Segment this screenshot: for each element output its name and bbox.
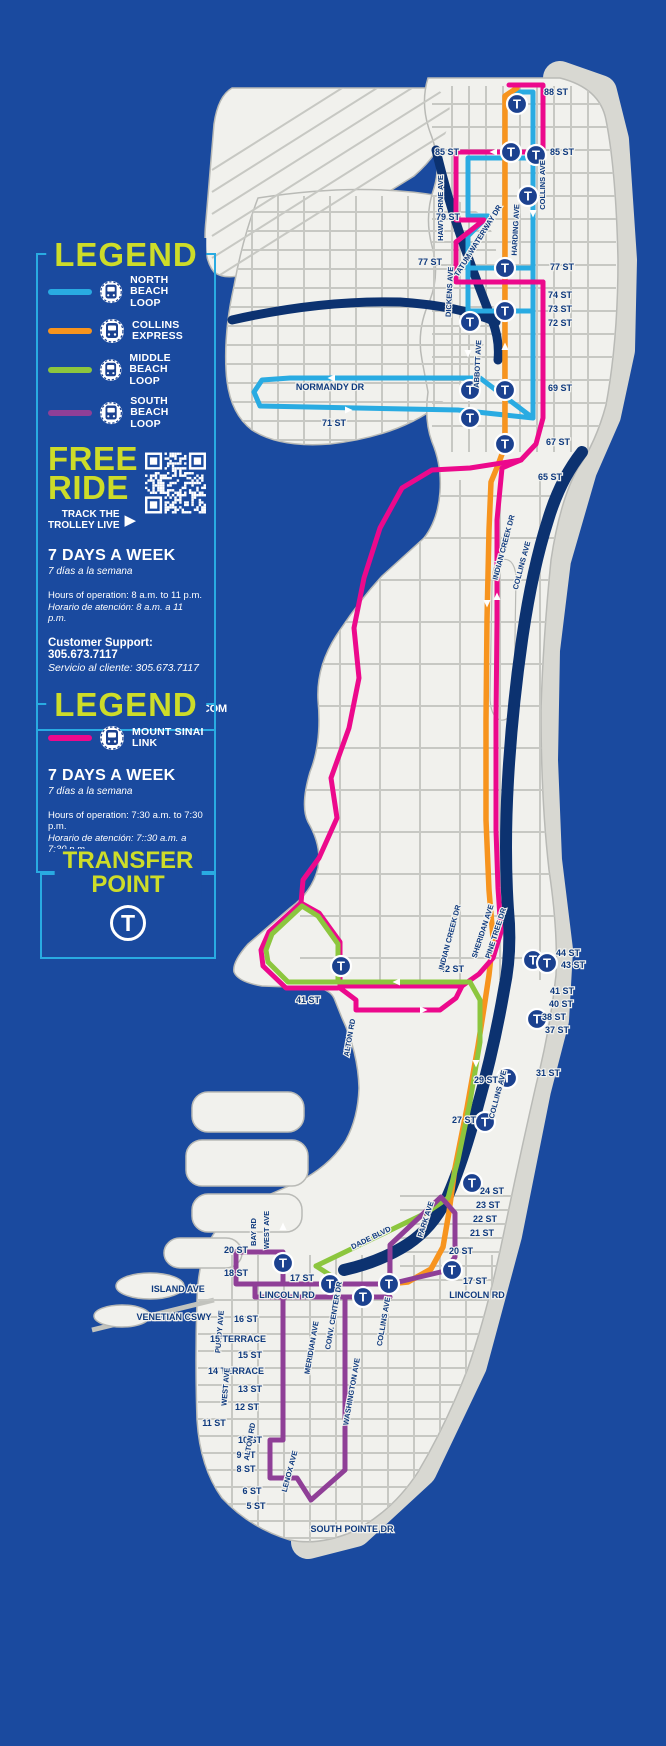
hours-of-operation-es: Horario de atención: 8 a.m. a 11 p.m. xyxy=(48,602,204,624)
street-label: 21 ST xyxy=(470,1228,495,1238)
transfer-point-icon: T xyxy=(518,186,538,206)
legend-row-south-beach: SOUTH BEACHLOOP xyxy=(48,396,204,430)
street-label: 8 ST xyxy=(236,1464,256,1474)
street-label: 20 ST xyxy=(449,1246,474,1256)
legend-route-list: NORTH BEACHLOOP COLLINSEXPRESS MIDDLE BE… xyxy=(48,275,204,430)
south-beach-line-swatch xyxy=(48,410,92,416)
transfer-point-panel: TRANSFER POINT T xyxy=(40,873,216,959)
route-label-line1: NORTH BEACH xyxy=(130,275,204,298)
trolley-stop-icon xyxy=(99,725,125,751)
svg-text:T: T xyxy=(279,1256,287,1271)
street-label: 22 ST xyxy=(473,1214,498,1224)
svg-text:T: T xyxy=(501,383,509,398)
transfer-point-icon: T xyxy=(495,380,515,400)
street-label: 29 ST xyxy=(474,1075,499,1085)
legend-row-north-beach: NORTH BEACHLOOP xyxy=(48,275,204,309)
hours-of-operation: Hours of operation: 7:30 a.m. to 7:30 p.… xyxy=(48,810,204,832)
svg-text:T: T xyxy=(448,1263,456,1278)
legend-title: LEGEND xyxy=(46,688,206,721)
street-label: 79 ST xyxy=(436,212,461,222)
street-label: 15 ST xyxy=(238,1350,263,1360)
transfer-point-icon: T xyxy=(537,953,557,973)
street-label: HAWTHORNE AVE xyxy=(436,175,445,241)
days-of-week-es: 7 días a la semana xyxy=(48,566,204,577)
street-label: 77 ST xyxy=(418,257,443,267)
mount-sinai-line-swatch xyxy=(48,735,92,741)
svg-text:T: T xyxy=(501,437,509,452)
svg-text:T: T xyxy=(468,1176,476,1191)
arrow-right-icon: ▶ xyxy=(125,513,137,528)
street-label: 17 ST xyxy=(290,1273,315,1283)
free-ride-block: FREE RIDE TRACK THE TROLLEY LIVE ▶ xyxy=(48,444,206,531)
street-label: 31 ST xyxy=(536,1068,561,1078)
street-label: LINCOLN RD xyxy=(259,1290,315,1300)
street-label: LINCOLN RD xyxy=(449,1290,505,1300)
svg-text:T: T xyxy=(529,953,537,968)
transfer-point-title: TRANSFER POINT xyxy=(55,849,202,897)
street-label: 16 ST xyxy=(234,1314,259,1324)
collins-express-line-swatch xyxy=(48,328,92,334)
transfer-point-icon: T xyxy=(501,142,521,162)
street-label: 17 ST xyxy=(463,1276,488,1286)
street-label: ISLAND AVE xyxy=(151,1284,205,1294)
customer-support-phone: Customer Support: 305.673.7117 xyxy=(48,637,204,661)
svg-text:T: T xyxy=(543,956,551,971)
transfer-point-icon: T xyxy=(460,312,480,332)
svg-text:T: T xyxy=(501,261,509,276)
street-label: 74 ST xyxy=(548,290,573,300)
street-label: 88 ST xyxy=(544,87,569,97)
street-label: 6 ST xyxy=(242,1486,262,1496)
street-label: NORMANDY DR xyxy=(296,382,365,392)
street-label: 69 ST xyxy=(548,383,573,393)
customer-support-phone-es: Servicio al cliente: 305.673.7117 xyxy=(48,662,204,674)
street-label: 24 ST xyxy=(480,1186,505,1196)
route-label-line1: MIDDLE BEACH xyxy=(129,353,204,376)
street-label: 23 ST xyxy=(476,1200,501,1210)
street-label: 11 ST xyxy=(202,1418,226,1428)
north-beach-line-swatch xyxy=(48,289,92,295)
trolley-stop-icon xyxy=(99,279,123,305)
street-label: 43 ST xyxy=(561,960,586,970)
free-ride-line2: RIDE xyxy=(48,473,138,502)
street-label: 5 ST xyxy=(246,1501,266,1511)
street-label: 14 TERRACE xyxy=(208,1366,264,1376)
transfer-point-icon: T xyxy=(442,1260,462,1280)
street-label: 41 ST xyxy=(550,986,575,996)
transfer-point-icon: T xyxy=(495,258,515,278)
legend-panel-main: LEGEND NORTH BEACHLOOP COLLINSEXPRESS MI… xyxy=(36,253,216,731)
street-label: 77 ST xyxy=(550,262,575,272)
street-label: 12 ST xyxy=(235,1402,260,1412)
legend-row-middle-beach: MIDDLE BEACHLOOP xyxy=(48,353,204,387)
days-of-week: 7 DAYS A WEEK xyxy=(48,767,204,785)
svg-text:T: T xyxy=(466,315,474,330)
street-label: 40 ST xyxy=(549,999,574,1009)
transfer-point-icon: T xyxy=(273,1253,293,1273)
qr-code[interactable] xyxy=(145,444,206,522)
svg-text:T: T xyxy=(513,97,521,112)
transfer-point-icon: T xyxy=(460,408,480,428)
route-label-line2: LOOP xyxy=(130,419,204,430)
trolley-map-page: { "colors": { "background": "#1a4a9f", "… xyxy=(0,0,666,1746)
trolley-stop-icon xyxy=(99,400,123,426)
street-label: 38 ST xyxy=(542,1012,567,1022)
street-label: 41 ST xyxy=(296,995,321,1005)
street-label: 15 TERRACE xyxy=(210,1334,266,1344)
trolley-stop-icon xyxy=(99,318,125,344)
track-trolley-line1: TRACK THE xyxy=(48,509,120,520)
street-label: WEST AVE xyxy=(262,1211,271,1249)
street-label: 73 ST xyxy=(548,304,573,314)
transfer-point-icon: T xyxy=(495,301,515,321)
route-label-line2: LINK xyxy=(132,738,204,749)
transfer-point-icon: T xyxy=(507,94,527,114)
svg-text:T: T xyxy=(337,959,345,974)
svg-text:T: T xyxy=(533,1012,541,1027)
transfer-point-icon: T xyxy=(331,956,351,976)
street-label: 27 ST xyxy=(452,1115,477,1125)
svg-text:T: T xyxy=(121,910,135,936)
street-label: BAY RD xyxy=(249,1217,258,1246)
street-label: 85 ST xyxy=(435,147,460,157)
street-label: 65 ST xyxy=(538,472,563,482)
legend-title: LEGEND xyxy=(46,238,206,271)
days-of-week: 7 DAYS A WEEK xyxy=(48,547,204,565)
track-trolley-line2: TROLLEY LIVE xyxy=(48,520,120,531)
street-label: 71 ST xyxy=(322,418,347,428)
svg-text:T: T xyxy=(359,1290,367,1305)
hours-of-operation: Hours of operation: 8 a.m. to 11 p.m. xyxy=(48,590,204,601)
middle-beach-line-swatch xyxy=(48,367,92,373)
legend-row-mount-sinai: MOUNT SINAILINK xyxy=(48,725,204,751)
legend-row-collins-express: COLLINSEXPRESS xyxy=(48,318,204,344)
street-label: 37 ST xyxy=(545,1025,570,1035)
transfer-point-icon: T xyxy=(379,1274,399,1294)
svg-text:T: T xyxy=(524,189,532,204)
street-label: SOUTH POINTE DR xyxy=(310,1524,394,1534)
svg-text:T: T xyxy=(507,145,515,160)
street-label: 72 ST xyxy=(548,318,573,328)
svg-text:T: T xyxy=(501,304,509,319)
street-label: 85 ST xyxy=(550,147,575,157)
route-label-line2: EXPRESS xyxy=(132,331,183,342)
route-label-line1: SOUTH BEACH xyxy=(130,396,204,419)
street-label: 18 ST xyxy=(224,1268,249,1278)
transfer-point-icon: T xyxy=(353,1287,373,1307)
days-of-week-es: 7 días a la semana xyxy=(48,786,204,797)
street-label: 44 ST xyxy=(556,948,581,958)
trolley-stop-icon xyxy=(99,357,122,383)
street-label: VENETIAN CSWY xyxy=(136,1312,211,1322)
route-label-line2: LOOP xyxy=(129,376,204,387)
street-label: 20 ST xyxy=(224,1245,249,1255)
transfer-point-icon: T xyxy=(108,903,148,943)
svg-text:T: T xyxy=(466,411,474,426)
street-label: 13 ST xyxy=(238,1384,263,1394)
svg-text:T: T xyxy=(385,1277,393,1292)
street-label: COLLINS AVE xyxy=(538,160,547,210)
transfer-point-icon: T xyxy=(495,434,515,454)
route-label-line2: LOOP xyxy=(130,298,204,309)
street-label: 67 ST xyxy=(546,437,571,447)
